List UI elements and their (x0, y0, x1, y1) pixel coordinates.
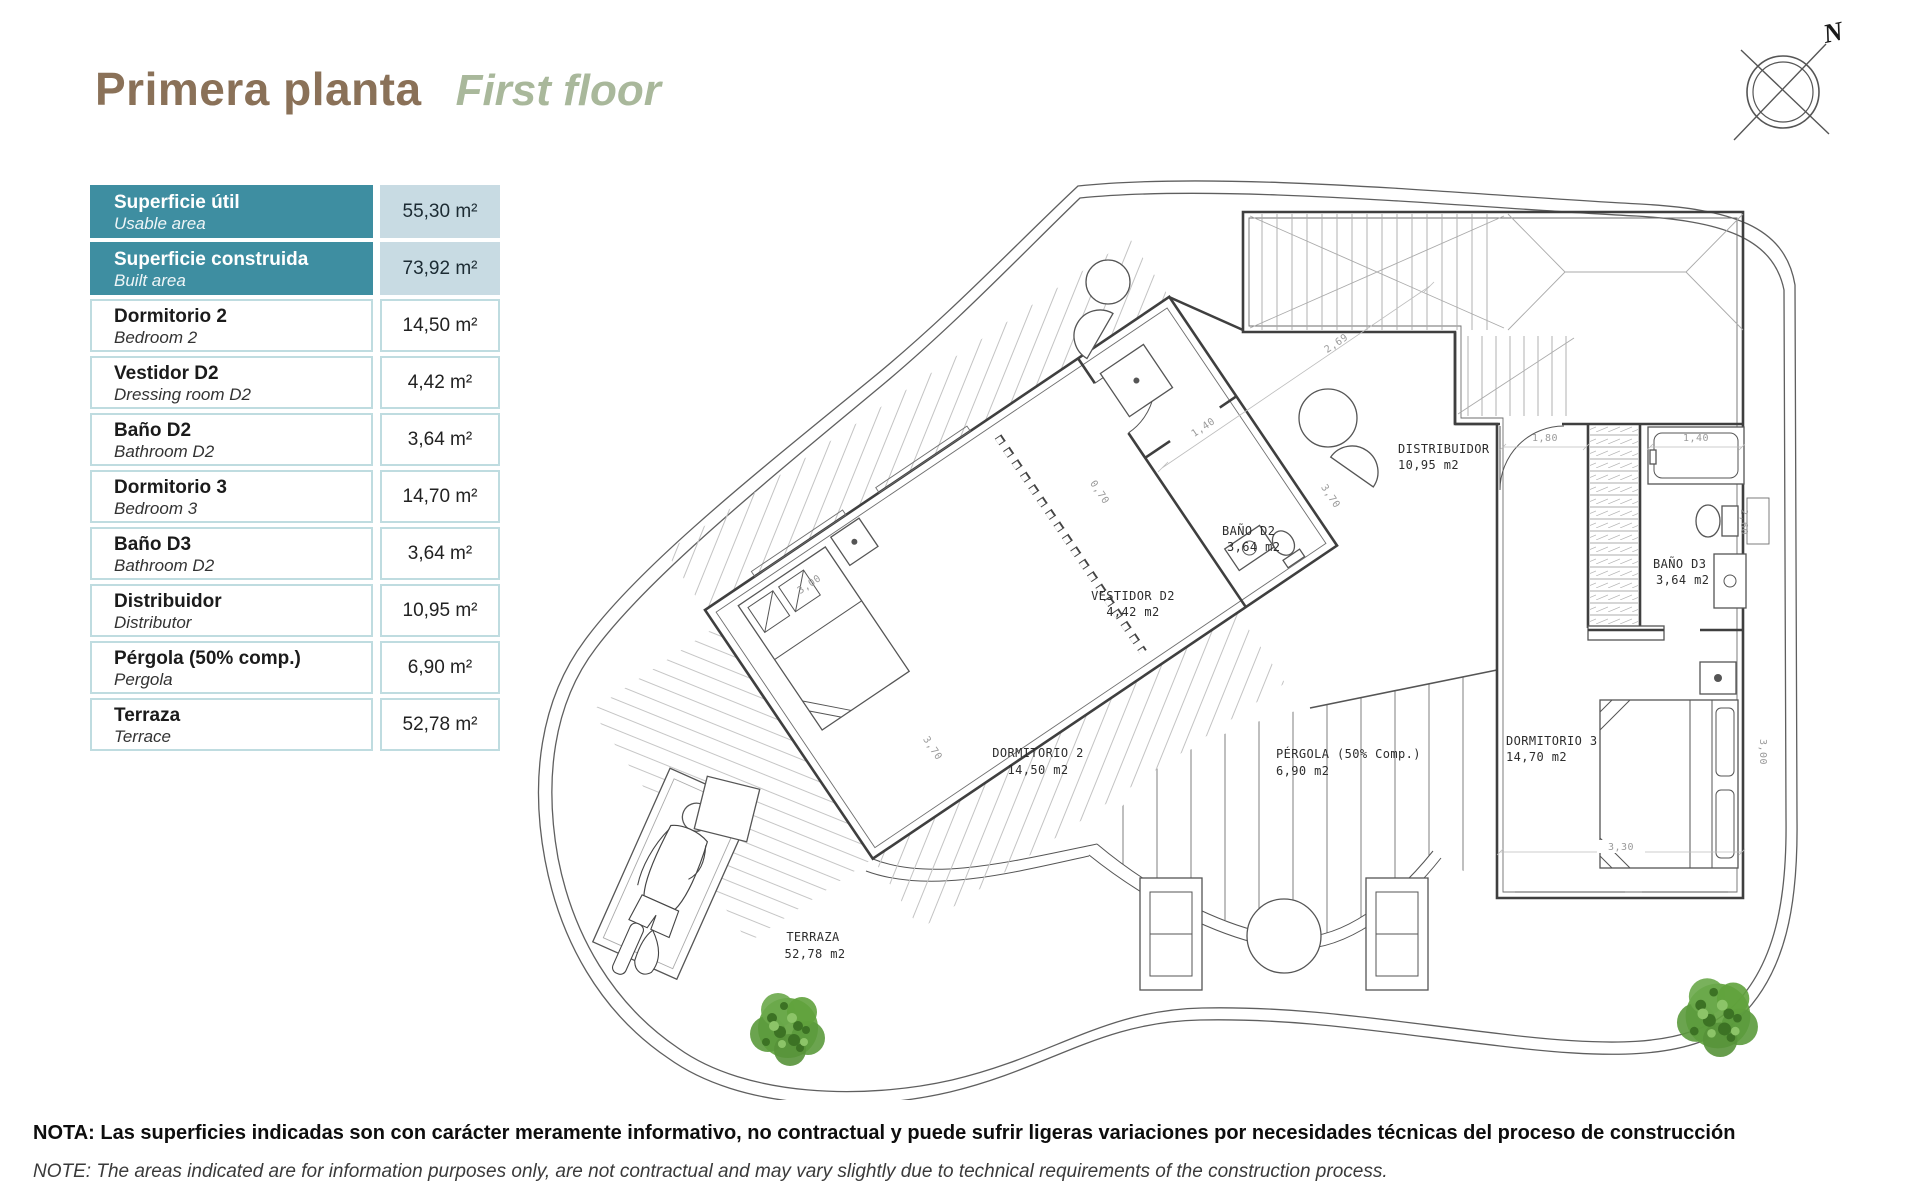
room-name-es: Distribuidor (114, 591, 367, 613)
desk (1588, 626, 1664, 640)
room-name-es: Pérgola (50% comp.) (114, 648, 367, 670)
table-row: Terraza Terrace 52,78 m² (90, 698, 500, 751)
dim-label: 3,30 (1608, 842, 1634, 853)
table-row: Distribuidor Distributor 10,95 m² (90, 584, 500, 637)
room-name-en: Usable area (114, 214, 367, 234)
bathroom-d2-fixtures (1100, 336, 1304, 594)
table-row: Pérgola (50% comp.) Pergola 6,90 m² (90, 641, 500, 694)
room-area-label: 52,78 m2 (785, 947, 846, 961)
room-area-label: 4,42 m2 (1106, 605, 1159, 619)
room-name-es: Baño D2 (114, 420, 367, 442)
room-name-es: Vestidor D2 (114, 363, 367, 385)
hip-roof (1508, 214, 1743, 330)
staircase (1458, 336, 1574, 416)
room-name-en: Terrace (114, 727, 367, 747)
page-title-en: First floor (456, 66, 661, 115)
room-label: DISTRIBUIDOR (1398, 442, 1490, 456)
room-name-en: Bedroom 2 (114, 328, 367, 348)
round-table (1247, 899, 1321, 973)
north-label: N (1819, 15, 1847, 49)
page-title-es: Primera planta (95, 63, 422, 115)
room-name-en: Built area (114, 271, 367, 291)
room-name-es: Superficie útil (114, 192, 367, 214)
area-table: Superficie útil Usable area 55,30 m² Sup… (90, 185, 500, 751)
room-name-en: Pergola (114, 670, 367, 690)
dim-label: 3,70 (920, 735, 944, 763)
room-label: DORMITORIO 3 (1506, 734, 1598, 748)
room-area-label: 3,64 m2 (1656, 573, 1709, 587)
room-area-label: 3,64 m2 (1227, 540, 1280, 554)
room-area-label: 14,70 m2 (1506, 750, 1567, 764)
note-en: NOTE: The areas indicated are for inform… (33, 1161, 1893, 1183)
tree (750, 993, 825, 1066)
table-row: Baño D3 Bathroom D2 3,64 m² (90, 527, 500, 580)
table-row: Vestidor D2 Dressing room D2 4,42 m² (90, 356, 500, 409)
dim-label: 1,40 (1683, 433, 1709, 444)
page-title: Primera plantaFirst floor (95, 62, 661, 116)
bedroom3-bed (1600, 662, 1738, 868)
closet (1590, 426, 1638, 626)
table-row: Baño D2 Bathroom D2 3,64 m² (90, 413, 500, 466)
dim-label: 3,00 (1757, 739, 1768, 765)
dim-label: 1,40 (1190, 416, 1218, 440)
room-name-es: Dormitorio 2 (114, 306, 367, 328)
room-area-label: 14,50 m2 (1008, 763, 1069, 777)
room-area-label: 10,95 m2 (1398, 458, 1459, 472)
room-label: DORMITORIO 2 (992, 746, 1084, 760)
table-row: Superficie útil Usable area 55,30 m² (90, 185, 500, 238)
dim-label: 1,80 (1532, 433, 1558, 444)
room-name-es: Terraza (114, 705, 367, 727)
dim-label: 3,70 (1318, 483, 1342, 511)
dim-label: 2,69 (1323, 332, 1351, 356)
room-name-es: Dormitorio 3 (114, 477, 367, 499)
table-row: Dormitorio 2 Bedroom 2 14,50 m² (90, 299, 500, 352)
table-row: Superficie construida Built area 73,92 m… (90, 242, 500, 295)
page: Primera plantaFirst floor N Superficie ú… (0, 0, 1920, 1200)
room-label: BAÑO D3 (1653, 556, 1706, 571)
room-name-en: Dressing room D2 (114, 385, 367, 405)
room-label: PÉRGOLA (50% Comp.) (1276, 746, 1421, 761)
room-label: BAÑO D2 (1222, 523, 1275, 538)
room-label: TERRAZA (786, 930, 840, 944)
floor-plan: DISTRIBUIDOR 10,95 m2 BAÑO D2 3,64 m2 VE… (440, 150, 1840, 1100)
room-label: VESTIDOR D2 (1091, 589, 1175, 603)
table-row: Dormitorio 3 Bedroom 3 14,70 m² (90, 470, 500, 523)
note-es: NOTA: Las superficies indicadas son con … (33, 1122, 1893, 1145)
compass-icon: N (1720, 10, 1880, 160)
wardrobe-dashes (995, 434, 1147, 654)
dim-label: 0,70 (1087, 479, 1111, 507)
room-name-en: Bedroom 3 (114, 499, 367, 519)
room-name-en: Bathroom D2 (114, 442, 367, 462)
room-name-es: Superficie construida (114, 249, 367, 271)
room-area-label: 6,90 m2 (1276, 764, 1329, 778)
room-name-en: Bathroom D2 (114, 556, 367, 576)
room-name-es: Baño D3 (114, 534, 367, 556)
room-name-en: Distributor (114, 613, 367, 633)
right-wing-interior (1455, 424, 1769, 868)
dim-label: 2,60 (1738, 509, 1749, 535)
